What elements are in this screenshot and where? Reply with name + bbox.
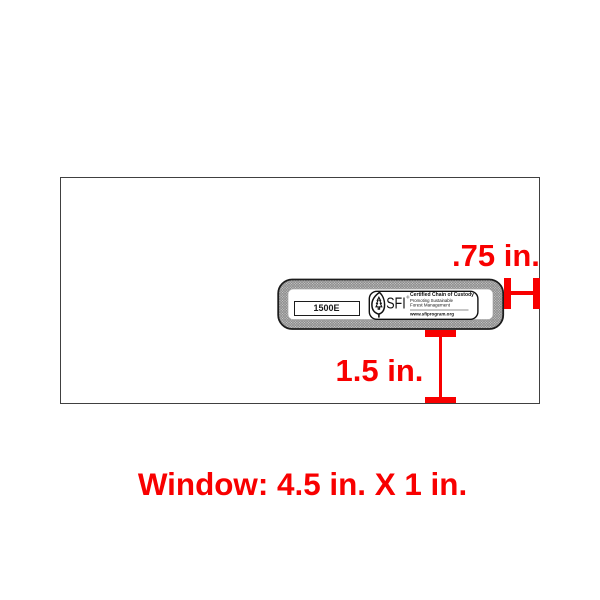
svg-text:®: ® — [406, 295, 409, 300]
svg-text:www.sfiprogram.org: www.sfiprogram.org — [409, 312, 454, 317]
svg-text:Forest Management: Forest Management — [410, 303, 451, 308]
svg-text:SFI: SFI — [386, 296, 406, 313]
